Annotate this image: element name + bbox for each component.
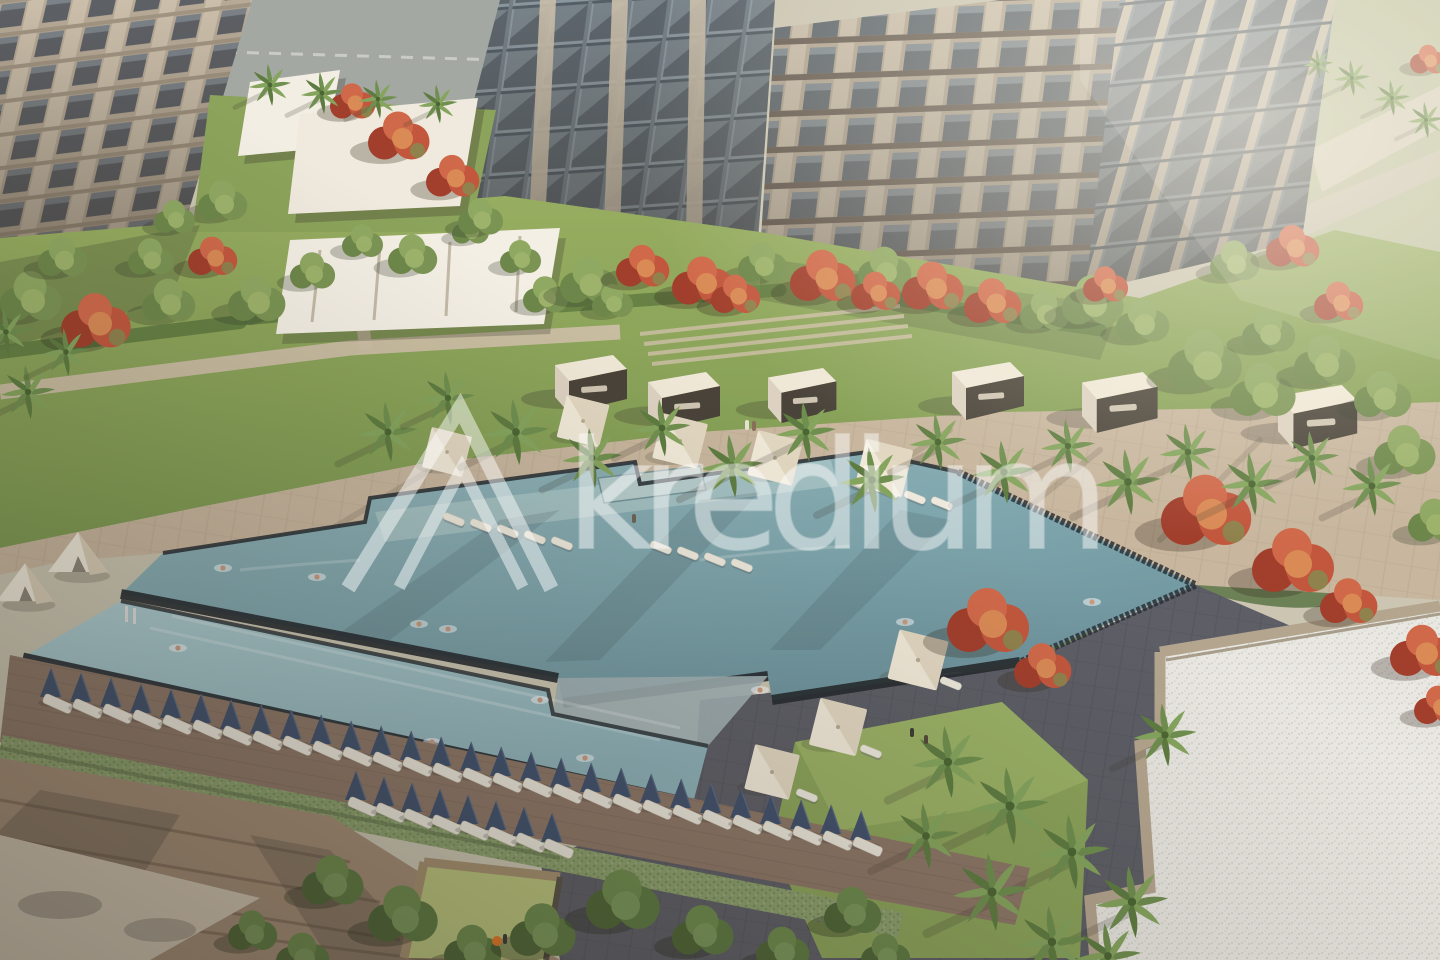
watermark-text: kredium [566, 410, 1098, 584]
aerial-render: kredium [0, 0, 1440, 960]
